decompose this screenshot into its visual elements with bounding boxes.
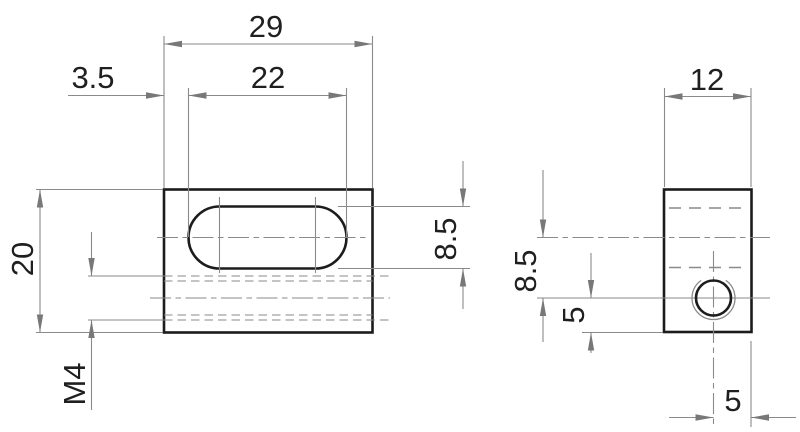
dimension-12: 12 <box>665 62 752 187</box>
side-body-outline <box>664 190 752 333</box>
dimension-29: 29 <box>164 9 373 188</box>
dimension-5-side: 5 <box>556 253 663 353</box>
dimension-8-5-side: 8.5 <box>508 170 546 342</box>
dim-label-5-bottom: 5 <box>724 383 741 418</box>
front-view <box>150 190 391 333</box>
dim-label-20: 20 <box>5 242 40 276</box>
dim-label-8-5-side: 8.5 <box>508 249 543 292</box>
dim-label-12: 12 <box>690 62 724 97</box>
front-body-outline <box>164 190 373 333</box>
dimension-m4: M4 <box>57 232 164 410</box>
dim-label-8-5-front: 8.5 <box>428 217 463 260</box>
dim-label-m4: M4 <box>57 362 92 405</box>
dim-label-3-5: 3.5 <box>71 60 114 95</box>
dimension-20: 20 <box>5 190 163 333</box>
dimension-5-bottom: 5 <box>669 341 796 427</box>
dim-label-5-side: 5 <box>556 306 591 323</box>
technical-drawing: 29 3.5 22 20 M4 8.5 <box>0 0 800 432</box>
dimension-3-5: 3.5 <box>68 60 164 99</box>
dim-label-22: 22 <box>251 60 285 95</box>
dimension-22: 22 <box>189 60 347 237</box>
dim-label-29: 29 <box>249 9 283 44</box>
front-centerlines <box>150 197 390 298</box>
dimension-8-5-front: 8.5 <box>338 161 470 309</box>
drawing-canvas: 29 3.5 22 20 M4 8.5 <box>0 0 800 432</box>
